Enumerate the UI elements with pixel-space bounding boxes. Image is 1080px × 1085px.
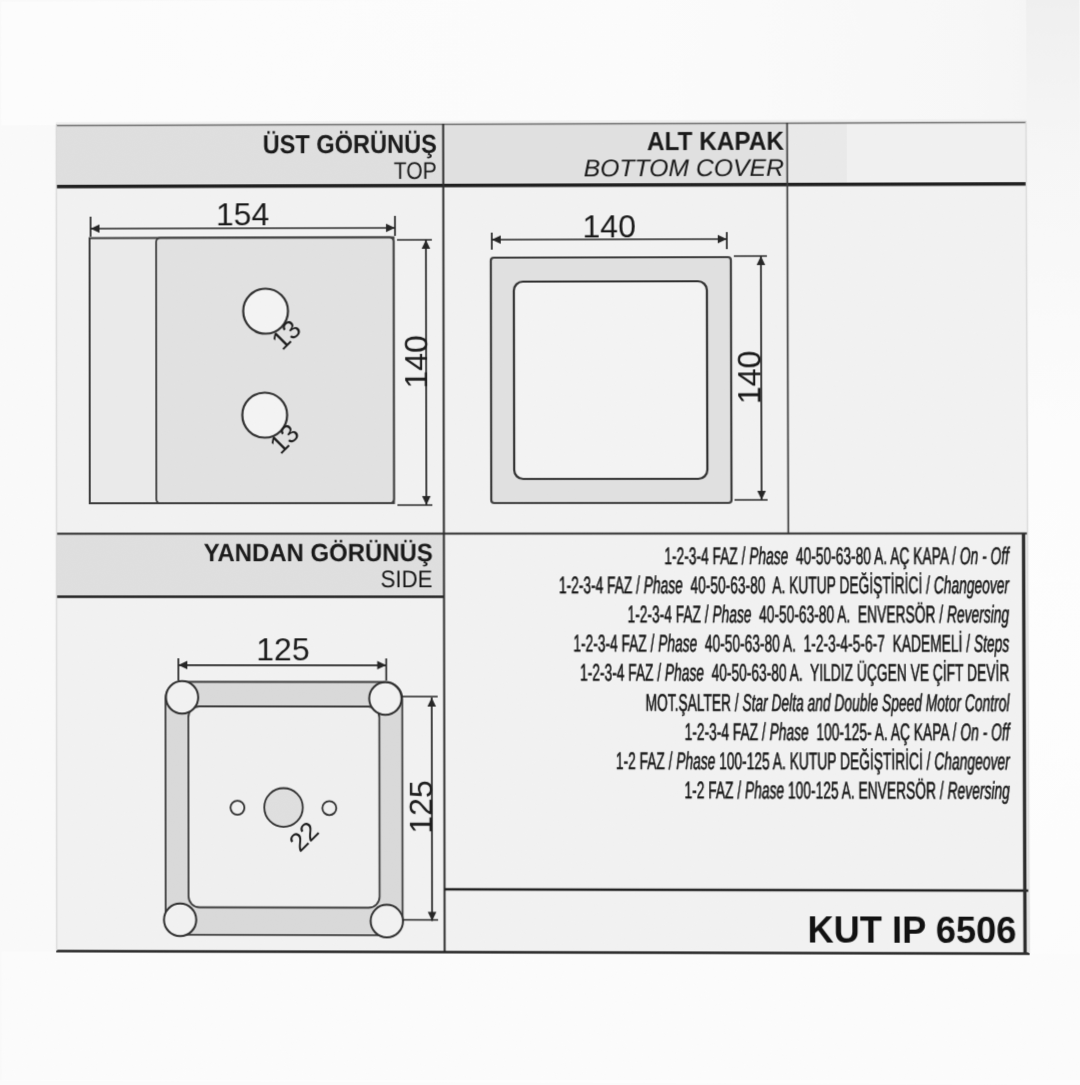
svg-text:140: 140 <box>582 208 635 244</box>
svg-text:125: 125 <box>403 780 439 834</box>
svg-text:154: 154 <box>216 196 269 232</box>
svg-text:140: 140 <box>398 335 434 388</box>
svg-text:125: 125 <box>256 631 309 667</box>
svg-text:140: 140 <box>731 351 767 405</box>
